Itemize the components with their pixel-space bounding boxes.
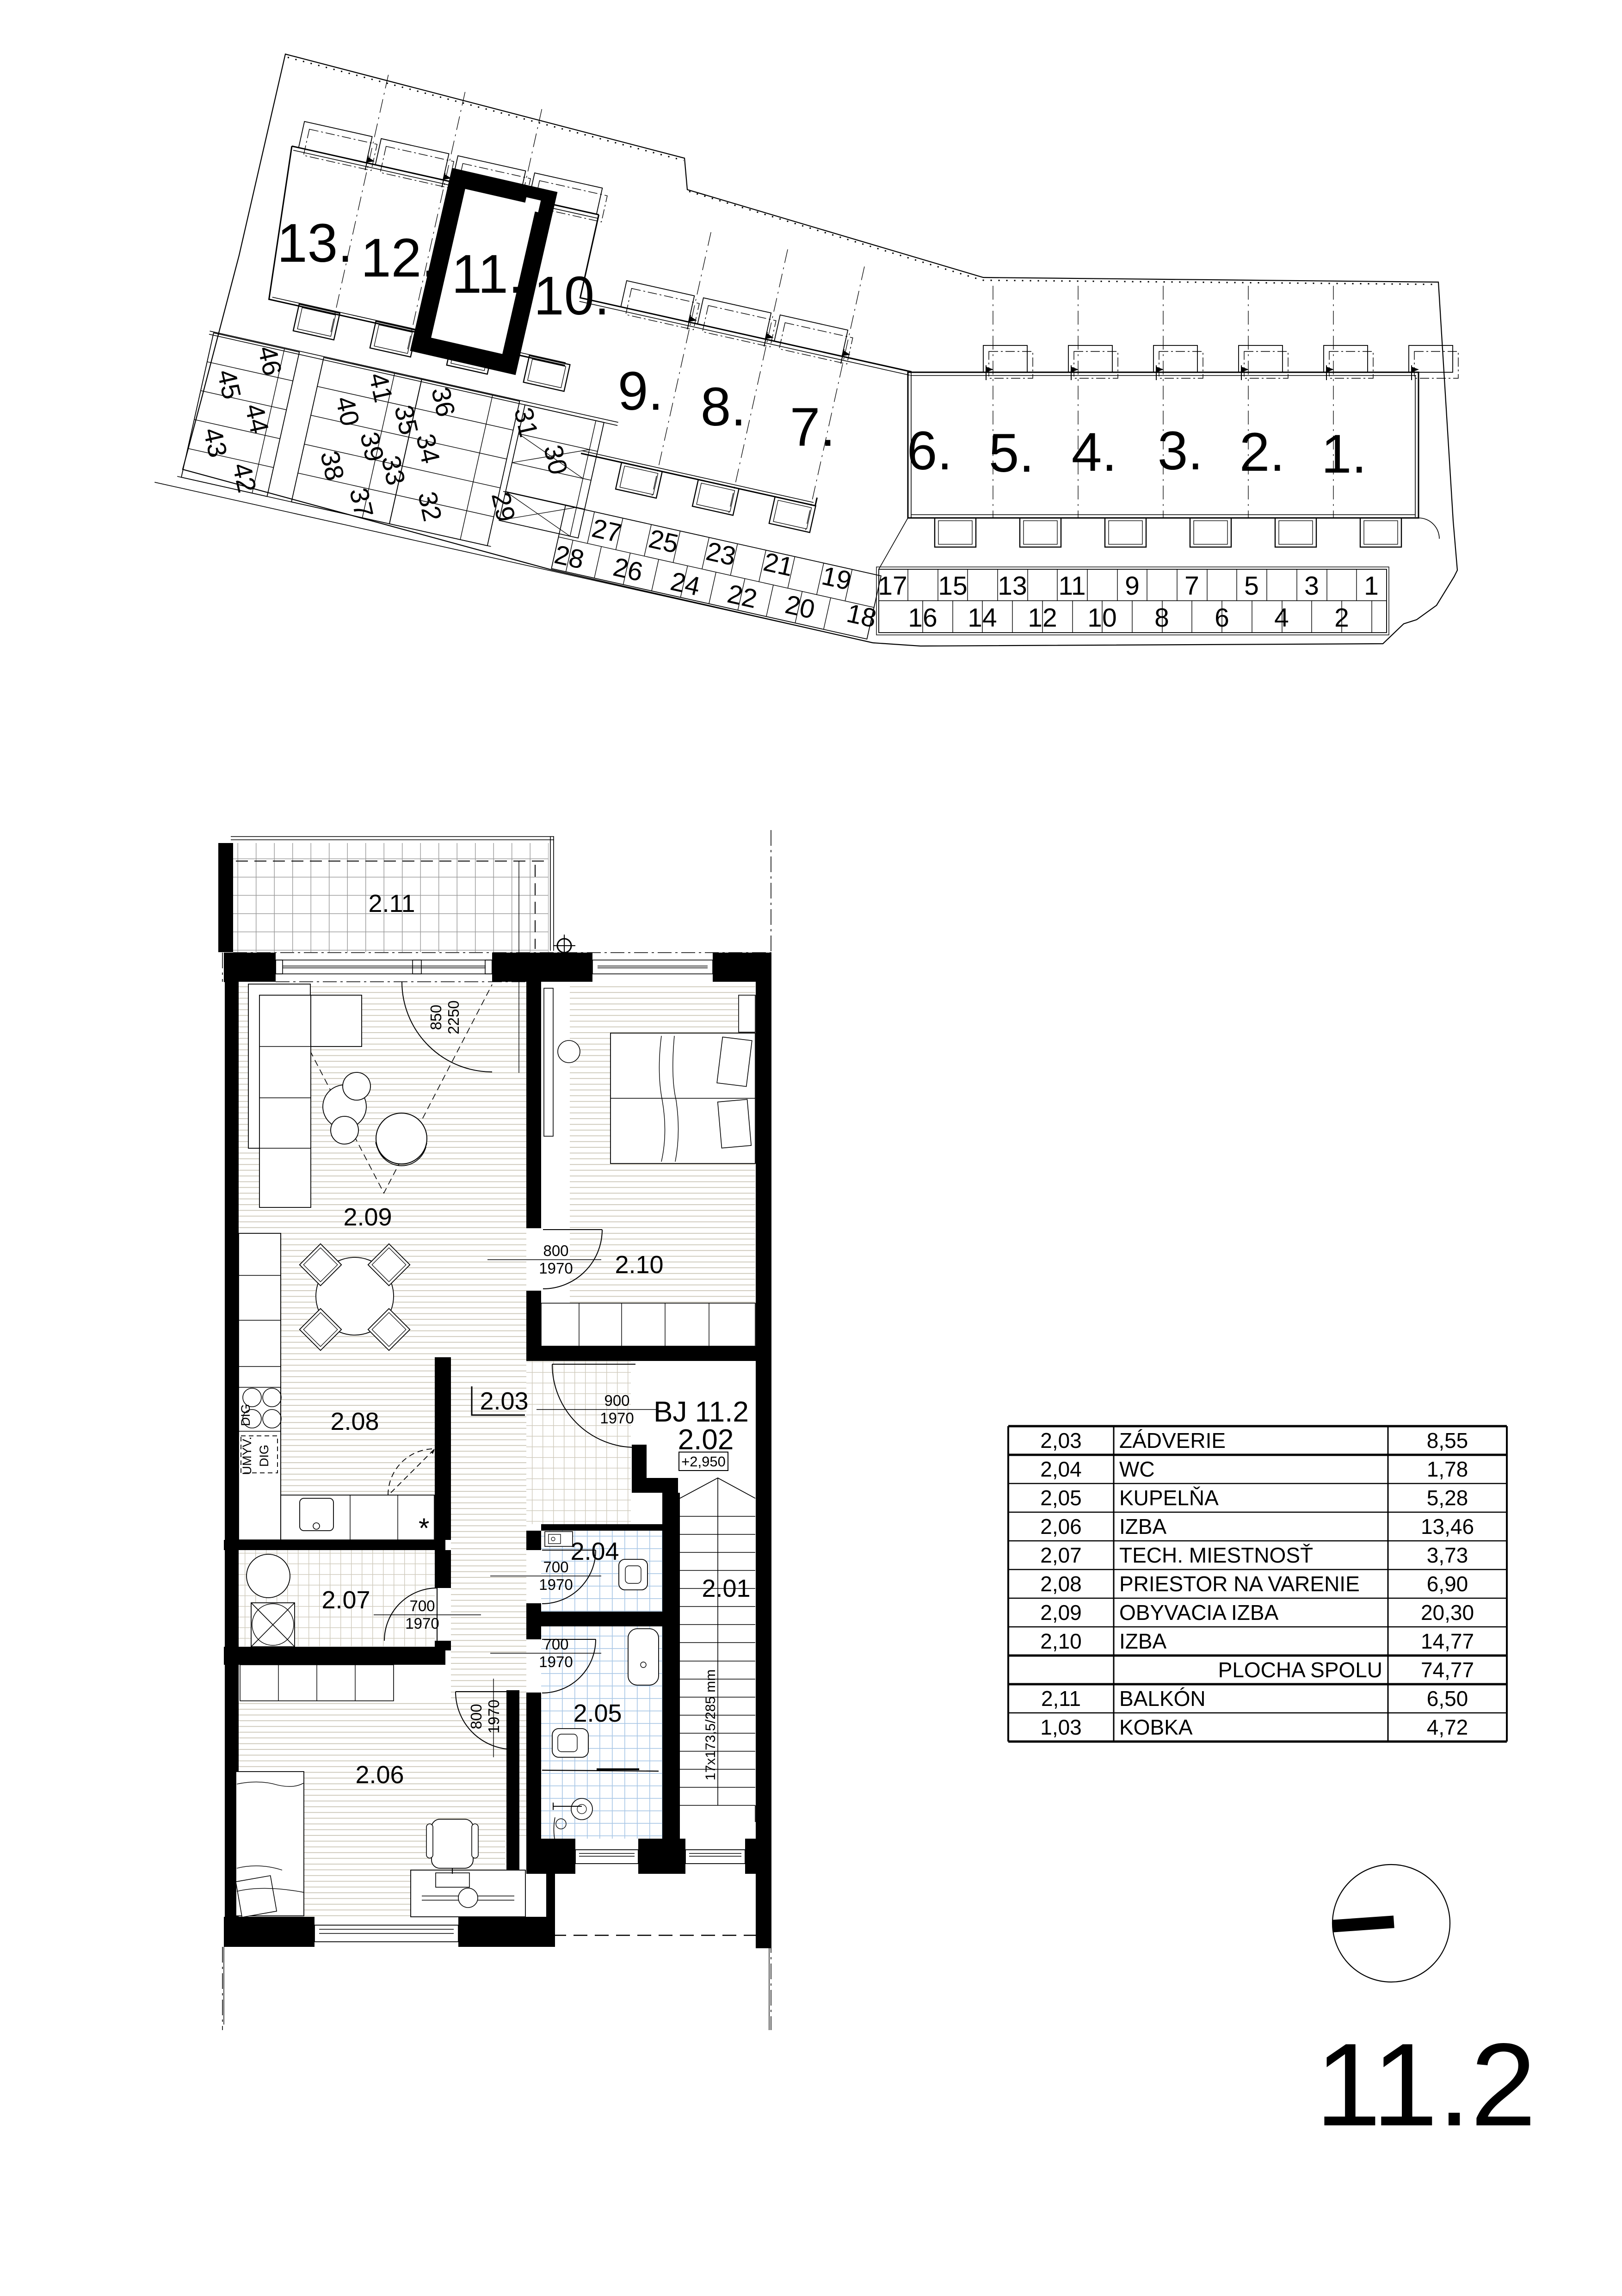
svg-text:2.08: 2.08	[330, 1408, 379, 1435]
svg-text:DIG: DIG	[239, 1404, 253, 1426]
svg-text:*: *	[419, 1513, 429, 1544]
svg-text:700: 700	[409, 1597, 435, 1614]
svg-text:2.05: 2.05	[573, 1699, 622, 1727]
svg-text:9: 9	[1125, 571, 1140, 601]
svg-text:10: 10	[1087, 603, 1116, 633]
svg-text:2.: 2.	[1240, 422, 1285, 483]
svg-text:6,90: 6,90	[1427, 1572, 1468, 1596]
svg-text:700: 700	[543, 1558, 568, 1576]
svg-text:16: 16	[908, 603, 937, 633]
svg-text:13: 13	[998, 571, 1027, 601]
svg-text:800: 800	[468, 1704, 485, 1729]
svg-text:KOBKA: KOBKA	[1119, 1715, 1193, 1739]
svg-text:1970: 1970	[405, 1615, 439, 1632]
svg-text:15: 15	[938, 571, 967, 601]
svg-text:4,72: 4,72	[1427, 1715, 1468, 1739]
svg-text:2.01: 2.01	[702, 1575, 750, 1602]
svg-text:17x173,5/285 mm: 17x173,5/285 mm	[703, 1669, 718, 1780]
svg-text:2,10: 2,10	[1040, 1629, 1082, 1653]
svg-text:11.2: 11.2	[1315, 2019, 1536, 2151]
svg-text:2.06: 2.06	[355, 1761, 404, 1789]
svg-text:2.09: 2.09	[343, 1203, 392, 1231]
svg-text:ZÁDVERIE: ZÁDVERIE	[1119, 1428, 1226, 1453]
svg-text:3: 3	[1304, 571, 1319, 601]
svg-text:KUPELŇA: KUPELŇA	[1119, 1486, 1219, 1510]
svg-text:11: 11	[1058, 571, 1085, 601]
svg-text:PRIESTOR NA VARENIE: PRIESTOR NA VARENIE	[1119, 1572, 1360, 1596]
svg-text:2250: 2250	[445, 1000, 462, 1034]
svg-text:850: 850	[427, 1004, 444, 1030]
svg-text:74,77: 74,77	[1421, 1658, 1474, 1682]
svg-text:2,04: 2,04	[1040, 1457, 1082, 1481]
svg-text:13.: 13.	[277, 213, 353, 274]
svg-text:20,30: 20,30	[1421, 1600, 1474, 1625]
svg-text:2: 2	[1334, 603, 1349, 633]
svg-text:8.: 8.	[701, 376, 746, 437]
svg-text:9.: 9.	[618, 361, 663, 422]
svg-text:900: 900	[604, 1392, 629, 1409]
svg-text:PLOCHA SPOLU: PLOCHA SPOLU	[1218, 1658, 1382, 1682]
svg-text:17: 17	[878, 571, 907, 601]
svg-text:IZBA: IZBA	[1119, 1514, 1167, 1539]
svg-text:12: 12	[1028, 603, 1057, 633]
svg-text:BJ 11.2: BJ 11.2	[654, 1396, 749, 1428]
svg-text:TECH. MIESTNOSŤ: TECH. MIESTNOSŤ	[1119, 1543, 1313, 1567]
svg-text:1970: 1970	[539, 1576, 573, 1593]
svg-text:1970: 1970	[600, 1410, 634, 1427]
svg-text:2,06: 2,06	[1040, 1514, 1082, 1539]
svg-text:+2,950: +2,950	[681, 1453, 726, 1470]
svg-text:5.: 5.	[989, 423, 1034, 484]
svg-text:BALKÓN: BALKÓN	[1119, 1687, 1206, 1711]
svg-text:12.: 12.	[361, 228, 437, 289]
svg-text:5,28: 5,28	[1427, 1486, 1468, 1510]
svg-text:14,77: 14,77	[1421, 1629, 1474, 1653]
svg-text:6.: 6.	[907, 420, 952, 481]
svg-text:DIG: DIG	[257, 1445, 271, 1467]
svg-text:5: 5	[1244, 571, 1259, 601]
svg-text:2.02: 2.02	[678, 1424, 734, 1456]
svg-text:6: 6	[1215, 603, 1229, 633]
svg-text:2,05: 2,05	[1040, 1486, 1082, 1510]
svg-text:2,08: 2,08	[1040, 1572, 1082, 1596]
svg-text:2.07: 2.07	[321, 1586, 370, 1614]
svg-text:2,09: 2,09	[1040, 1600, 1082, 1625]
svg-text:2.03: 2.03	[480, 1387, 528, 1415]
svg-text:11.: 11.	[451, 244, 523, 305]
svg-text:6,50: 6,50	[1427, 1687, 1468, 1711]
svg-text:1.: 1.	[1321, 424, 1367, 485]
svg-text:OBYVACIA IZBA: OBYVACIA IZBA	[1119, 1600, 1279, 1625]
svg-text:1,78: 1,78	[1427, 1457, 1468, 1481]
svg-text:4: 4	[1274, 603, 1289, 633]
svg-text:800: 800	[543, 1242, 568, 1259]
svg-text:IZBA: IZBA	[1119, 1629, 1167, 1653]
svg-text:13,46: 13,46	[1421, 1514, 1474, 1539]
svg-text:UMYV.: UMYV.	[240, 1436, 254, 1475]
svg-text:2.10: 2.10	[615, 1251, 663, 1279]
svg-text:2,03: 2,03	[1040, 1428, 1082, 1453]
svg-text:2,07: 2,07	[1040, 1543, 1082, 1567]
svg-text:1970: 1970	[539, 1653, 573, 1670]
svg-text:8,55: 8,55	[1427, 1428, 1468, 1453]
svg-text:700: 700	[543, 1636, 568, 1653]
svg-text:1: 1	[1364, 571, 1379, 601]
svg-text:3.: 3.	[1158, 420, 1203, 481]
svg-text:1,03: 1,03	[1040, 1715, 1082, 1739]
svg-text:10.: 10.	[534, 265, 610, 326]
svg-text:WC: WC	[1119, 1457, 1155, 1481]
svg-text:14: 14	[968, 603, 997, 633]
svg-text:7.: 7.	[790, 397, 835, 458]
svg-text:2,11: 2,11	[1041, 1687, 1081, 1711]
svg-text:4.: 4.	[1072, 422, 1117, 483]
svg-text:8: 8	[1154, 603, 1169, 633]
svg-text:7: 7	[1184, 571, 1199, 601]
svg-text:2.04: 2.04	[570, 1538, 619, 1565]
svg-text:1970: 1970	[539, 1260, 573, 1277]
svg-text:3,73: 3,73	[1427, 1543, 1468, 1567]
svg-text:2.11: 2.11	[368, 890, 415, 917]
